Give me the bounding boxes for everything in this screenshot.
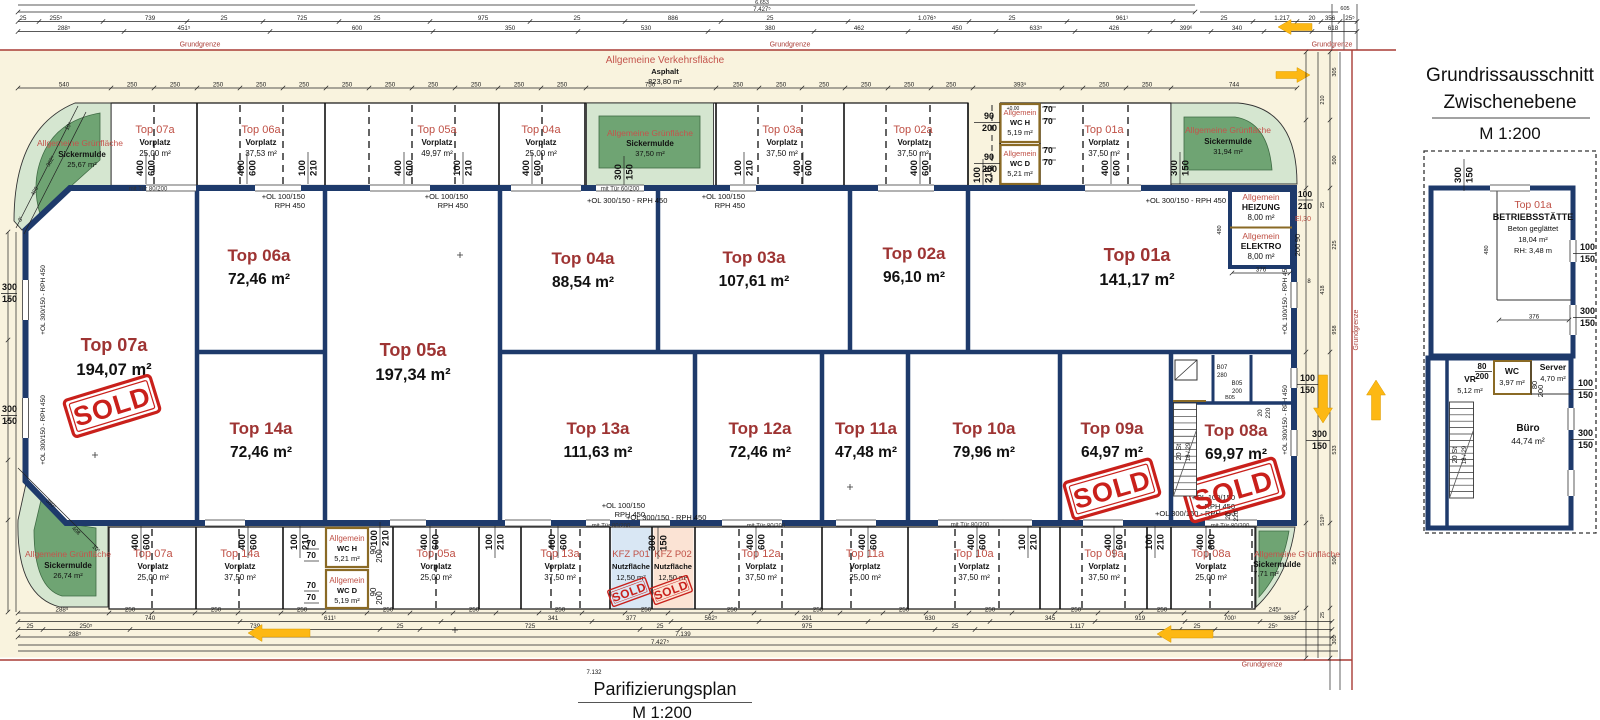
svg-text:533: 533 <box>1332 445 1338 454</box>
svg-text:150: 150 <box>1578 440 1593 450</box>
svg-text:7.427⁵: 7.427⁵ <box>651 639 669 646</box>
svg-text:Allgemein: Allgemein <box>1242 231 1280 241</box>
svg-text:451⁵: 451⁵ <box>178 25 191 32</box>
svg-text:Top 12a: Top 12a <box>729 419 793 438</box>
svg-text:B05: B05 <box>1232 381 1243 387</box>
svg-text:Allgemein: Allgemein <box>329 576 364 585</box>
svg-text:+OL 100/150: +OL 100/150 <box>702 192 745 201</box>
svg-text:288⁵: 288⁵ <box>69 631 82 638</box>
svg-text:376: 376 <box>1529 314 1540 321</box>
svg-text:7.132: 7.132 <box>586 670 602 676</box>
svg-text:376: 376 <box>1256 267 1267 274</box>
svg-text:25: 25 <box>1320 202 1326 208</box>
svg-text:400: 400 <box>792 160 803 176</box>
svg-text:20: 20 <box>1225 512 1232 520</box>
svg-text:255⁵: 255⁵ <box>50 15 63 22</box>
svg-text:600: 600 <box>352 25 363 32</box>
svg-text:250: 250 <box>1157 607 1168 614</box>
svg-text:25: 25 <box>221 15 228 22</box>
svg-text:480: 480 <box>1484 245 1490 254</box>
svg-text:+0,00: +0,00 <box>1007 106 1020 112</box>
svg-text:Zwischenebene: Zwischenebene <box>1443 92 1576 113</box>
svg-text:100: 100 <box>1298 189 1312 199</box>
svg-text:288⁵: 288⁵ <box>56 607 69 614</box>
svg-text:B07: B07 <box>1217 365 1228 371</box>
svg-text:Top 14a: Top 14a <box>230 419 294 438</box>
svg-text:49,97 m²: 49,97 m² <box>421 149 453 158</box>
svg-text:70: 70 <box>1043 104 1053 114</box>
svg-text:70: 70 <box>1043 157 1053 167</box>
svg-text:400: 400 <box>1195 534 1206 550</box>
svg-text:210: 210 <box>745 160 756 176</box>
svg-text:480: 480 <box>1217 225 1223 234</box>
svg-text:345: 345 <box>1045 615 1056 622</box>
svg-text:100: 100 <box>1578 378 1593 388</box>
svg-text:Sickermulde: Sickermulde <box>1253 560 1301 569</box>
svg-text:250: 250 <box>342 82 353 89</box>
svg-text:Top 04a: Top 04a <box>552 249 616 268</box>
svg-text:Grundgrenze: Grundgrenze <box>770 42 811 49</box>
svg-text:Allgemeine Grünfläche: Allgemeine Grünfläche <box>607 128 693 138</box>
svg-text:400: 400 <box>1103 534 1114 550</box>
svg-text:100: 100 <box>484 534 495 550</box>
svg-text:Vorplatz: Vorplatz <box>526 138 557 147</box>
svg-text:Grundgrenze: Grundgrenze <box>180 42 221 49</box>
svg-text:400: 400 <box>1100 160 1111 176</box>
svg-text:250⁵: 250⁵ <box>80 623 93 630</box>
svg-text:80: 80 <box>1478 362 1487 371</box>
svg-text:744: 744 <box>1229 82 1240 89</box>
svg-text:M 1:200: M 1:200 <box>1479 124 1540 143</box>
svg-text:+OL 300/150 - RPH 450: +OL 300/150 - RPH 450 <box>587 196 667 205</box>
svg-text:Grundgrenze: Grundgrenze <box>1353 309 1360 350</box>
svg-text:Top 02a: Top 02a <box>893 124 933 136</box>
svg-text:562⁵: 562⁵ <box>705 615 718 622</box>
svg-text:25⁵: 25⁵ <box>1268 623 1278 630</box>
svg-text:225: 225 <box>1332 240 1338 249</box>
svg-text:8,00 m²: 8,00 m² <box>1247 252 1274 261</box>
svg-text:7.139: 7.139 <box>675 631 691 638</box>
svg-text:72,46 m²: 72,46 m² <box>729 444 791 461</box>
svg-text:600: 600 <box>248 160 259 176</box>
svg-text:20: 20 <box>1309 15 1316 22</box>
svg-text:540: 540 <box>59 82 70 89</box>
svg-text:25: 25 <box>397 623 404 630</box>
svg-text:300: 300 <box>1169 160 1180 176</box>
svg-text:600: 600 <box>978 534 989 550</box>
svg-text:600: 600 <box>147 160 158 176</box>
svg-text:Allgemeine Grünfläche: Allgemeine Grünfläche <box>37 138 123 148</box>
svg-text:200: 200 <box>1293 244 1302 257</box>
svg-text:919: 919 <box>1135 615 1146 622</box>
svg-text:600: 600 <box>921 160 932 176</box>
svg-text:Allgemeine Grünfläche: Allgemeine Grünfläche <box>1254 549 1340 559</box>
svg-text:8,00 m²: 8,00 m² <box>1247 213 1274 222</box>
svg-text:600: 600 <box>869 534 880 550</box>
svg-text:37,50 m²: 37,50 m² <box>635 149 665 158</box>
svg-text:210: 210 <box>496 534 507 550</box>
svg-text:380: 380 <box>765 25 776 32</box>
svg-text:25,00 m²: 25,00 m² <box>849 573 881 582</box>
svg-text:210: 210 <box>464 160 475 176</box>
svg-text:100: 100 <box>452 160 463 176</box>
svg-text:WC H: WC H <box>1010 118 1030 127</box>
svg-text:350: 350 <box>505 25 516 32</box>
svg-text:37,50 m²: 37,50 m² <box>766 149 798 158</box>
svg-text:200: 200 <box>375 591 384 605</box>
svg-text:197,34 m²: 197,34 m² <box>375 366 451 384</box>
svg-text:Allgemein: Allgemein <box>329 534 364 543</box>
svg-text:250: 250 <box>946 82 957 89</box>
svg-text:25,00 m²: 25,00 m² <box>1195 573 1227 582</box>
svg-text:70: 70 <box>307 592 317 602</box>
svg-text:250: 250 <box>1071 607 1082 614</box>
svg-text:WC H: WC H <box>337 544 357 553</box>
svg-text:150: 150 <box>2 294 17 304</box>
svg-text:25: 25 <box>952 623 959 630</box>
svg-text:mit Tür 80/200: mit Tür 80/200 <box>747 524 786 530</box>
svg-text:70: 70 <box>1043 145 1053 155</box>
svg-text:70: 70 <box>307 580 317 590</box>
svg-text:Top 08a: Top 08a <box>1205 421 1269 440</box>
svg-text:+OL 300/150 - RPH 450: +OL 300/150 - RPH 450 <box>1282 385 1289 455</box>
svg-text:150: 150 <box>1181 160 1192 176</box>
svg-text:64,97 m²: 64,97 m² <box>1081 444 1143 461</box>
svg-text:88,54 m²: 88,54 m² <box>552 274 614 291</box>
svg-text:Top 01a: Top 01a <box>1104 245 1172 265</box>
svg-text:25,00 m²: 25,00 m² <box>525 149 557 158</box>
svg-text:250: 250 <box>471 82 482 89</box>
svg-text:25: 25 <box>1320 612 1326 618</box>
svg-text:250: 250 <box>557 82 568 89</box>
svg-text:150: 150 <box>1300 385 1315 395</box>
svg-text:72,46 m²: 72,46 m² <box>228 271 290 288</box>
svg-text:7,71 m²: 7,71 m² <box>1253 569 1279 578</box>
svg-text:Top 07a: Top 07a <box>81 335 149 355</box>
svg-text:210: 210 <box>309 160 320 176</box>
svg-text:250: 250 <box>1099 82 1110 89</box>
svg-text:37,50 m²: 37,50 m² <box>745 573 777 582</box>
svg-text:VR: VR <box>1464 374 1476 384</box>
svg-text:Vorplatz: Vorplatz <box>767 138 798 147</box>
svg-text:+OL 300/150 - RPH 450: +OL 300/150 - RPH 450 <box>626 513 706 522</box>
svg-text:18,04 m²: 18,04 m² <box>1518 235 1548 244</box>
svg-text:250: 250 <box>776 82 787 89</box>
svg-text:Vorplatz: Vorplatz <box>1196 562 1227 571</box>
svg-text:Vorplatz: Vorplatz <box>545 562 576 571</box>
svg-text:WC D: WC D <box>337 586 358 595</box>
svg-text:Vorplatz: Vorplatz <box>421 562 452 571</box>
svg-text:20: 20 <box>1257 409 1264 417</box>
svg-text:250: 250 <box>904 82 915 89</box>
svg-text:500: 500 <box>1332 555 1338 564</box>
svg-text:633⁵: 633⁵ <box>1030 25 1043 32</box>
svg-text:400: 400 <box>419 534 430 550</box>
svg-text:700¹: 700¹ <box>1224 615 1236 622</box>
svg-text:141,17 m²: 141,17 m² <box>1099 271 1175 289</box>
svg-text:BETRIEBSSTÄTTE: BETRIEBSSTÄTTE <box>1493 212 1574 222</box>
svg-text:200: 200 <box>1536 385 1545 398</box>
svg-text:WC D: WC D <box>1010 159 1031 168</box>
svg-text:70: 70 <box>1043 116 1053 126</box>
svg-text:426: 426 <box>1109 25 1120 32</box>
svg-text:4,70 m²: 4,70 m² <box>1540 374 1566 383</box>
svg-text:210: 210 <box>984 167 995 183</box>
svg-text:250: 250 <box>899 607 910 614</box>
svg-text:Vorplatz: Vorplatz <box>850 562 881 571</box>
svg-text:280: 280 <box>1217 373 1228 379</box>
svg-text:1.217: 1.217 <box>1274 15 1290 22</box>
svg-text:725: 725 <box>525 623 536 630</box>
svg-text:250: 250 <box>813 607 824 614</box>
svg-text:25: 25 <box>767 15 774 22</box>
svg-text:250: 250 <box>213 82 224 89</box>
svg-text:5,12 m²: 5,12 m² <box>1457 386 1483 395</box>
svg-text:530: 530 <box>641 25 652 32</box>
svg-text:519⁵: 519⁵ <box>1319 514 1326 525</box>
svg-text:975: 975 <box>802 623 813 630</box>
svg-text:El,30: El,30 <box>1295 216 1311 223</box>
svg-text:750: 750 <box>645 82 656 89</box>
svg-text:37,50 m²: 37,50 m² <box>1088 149 1120 158</box>
svg-text:+OL 300/150 - RPH 450: +OL 300/150 - RPH 450 <box>40 265 47 335</box>
svg-text:25,67 m²: 25,67 m² <box>67 160 97 169</box>
svg-text:Sickermulde: Sickermulde <box>626 139 674 148</box>
svg-text:Vorplatz: Vorplatz <box>140 138 171 147</box>
svg-text:Allgemeine Grünfläche: Allgemeine Grünfläche <box>1185 125 1271 135</box>
svg-text:250: 250 <box>819 82 830 89</box>
svg-text:200: 200 <box>1475 372 1489 381</box>
svg-text:Top 05a: Top 05a <box>380 340 448 360</box>
svg-text:B05: B05 <box>1225 395 1235 401</box>
svg-text:150: 150 <box>1580 318 1595 328</box>
svg-text:100: 100 <box>297 160 308 176</box>
svg-text:300: 300 <box>1312 429 1327 439</box>
svg-text:M 1:200: M 1:200 <box>632 704 692 720</box>
svg-text:975: 975 <box>478 15 489 22</box>
svg-text:300: 300 <box>647 535 658 551</box>
svg-text:400: 400 <box>236 160 247 176</box>
svg-text:300: 300 <box>2 282 17 292</box>
svg-text:600: 600 <box>142 534 153 550</box>
svg-text:96,10 m²: 96,10 m² <box>883 269 945 286</box>
svg-text:400: 400 <box>745 534 756 550</box>
svg-text:400: 400 <box>237 534 248 550</box>
svg-text:25: 25 <box>20 15 27 22</box>
svg-text:Top 06a: Top 06a <box>228 246 292 265</box>
svg-text:70: 70 <box>307 550 317 560</box>
svg-text:600: 600 <box>804 160 815 176</box>
svg-text:250: 250 <box>1142 82 1153 89</box>
svg-text:100: 100 <box>1144 534 1155 550</box>
svg-text:5,21 m²: 5,21 m² <box>334 554 360 563</box>
svg-text:961¹: 961¹ <box>1116 15 1128 22</box>
svg-text:79,96 m²: 79,96 m² <box>953 444 1015 461</box>
svg-text:600: 600 <box>1112 160 1123 176</box>
svg-text:250: 250 <box>211 607 222 614</box>
svg-text:400: 400 <box>857 534 868 550</box>
svg-text:250: 250 <box>985 607 996 614</box>
svg-text:Vorplatz: Vorplatz <box>1089 562 1120 571</box>
svg-text:1.117: 1.117 <box>1069 623 1085 630</box>
svg-text:400: 400 <box>393 160 404 176</box>
svg-text:200: 200 <box>982 123 997 133</box>
svg-text:210: 210 <box>1320 95 1326 104</box>
svg-text:100: 100 <box>1300 373 1315 383</box>
svg-text:400: 400 <box>909 160 920 176</box>
svg-text:250: 250 <box>127 82 138 89</box>
svg-text:611¹: 611¹ <box>324 615 336 622</box>
svg-text:Nutzfläche: Nutzfläche <box>654 562 692 571</box>
svg-text:250: 250 <box>170 82 181 89</box>
svg-text:18 / 29: 18 / 29 <box>1186 442 1192 461</box>
svg-text:Allgemein: Allgemein <box>1004 149 1037 158</box>
svg-text:250: 250 <box>383 607 394 614</box>
svg-text:107,61 m²: 107,61 m² <box>719 273 790 290</box>
svg-text:Allgemeine Verkehrsfläche: Allgemeine Verkehrsfläche <box>606 55 725 66</box>
svg-text:25: 25 <box>374 15 381 22</box>
svg-text:150: 150 <box>1312 441 1327 451</box>
svg-text:600: 600 <box>1115 534 1126 550</box>
svg-text:25⁵: 25⁵ <box>1345 15 1355 22</box>
svg-text:Top 11a: Top 11a <box>835 419 898 438</box>
svg-text:+OL 300/150 - RPH 450: +OL 300/150 - RPH 450 <box>40 395 47 465</box>
svg-text:6.653: 6.653 <box>755 0 769 6</box>
svg-text:Grundgrenze: Grundgrenze <box>1312 42 1353 49</box>
svg-text:111,63 m²: 111,63 m² <box>564 444 633 461</box>
svg-text:Top 13a: Top 13a <box>567 419 631 438</box>
svg-text:mit Tür 80/200: mit Tür 80/200 <box>1211 524 1250 530</box>
svg-text:150: 150 <box>1578 390 1593 400</box>
svg-text:886: 886 <box>668 15 679 22</box>
svg-text:Sickermulde: Sickermulde <box>44 561 92 570</box>
svg-text:mit Tür 80/200: mit Tür 80/200 <box>129 186 168 192</box>
svg-text:Sickermulde: Sickermulde <box>58 150 106 159</box>
svg-text:250: 250 <box>385 82 396 89</box>
svg-text:210: 210 <box>1029 534 1040 550</box>
svg-text:44,74 m²: 44,74 m² <box>1511 436 1545 446</box>
svg-text:ELEKTRO: ELEKTRO <box>1241 241 1282 251</box>
svg-text:HEIZUNG: HEIZUNG <box>1242 202 1281 212</box>
svg-text:Top 03a: Top 03a <box>762 124 802 136</box>
svg-text:25,00 m²: 25,00 m² <box>420 573 452 582</box>
svg-text:Top 07a: Top 07a <box>135 124 175 136</box>
svg-text:250: 250 <box>641 607 652 614</box>
svg-text:300: 300 <box>1453 167 1464 183</box>
svg-text:Vorplatz: Vorplatz <box>1089 138 1120 147</box>
svg-text:150: 150 <box>1465 167 1476 183</box>
svg-text:400: 400 <box>130 534 141 550</box>
svg-text:400: 400 <box>966 534 977 550</box>
svg-text:500: 500 <box>1332 155 1338 164</box>
svg-text:400: 400 <box>521 160 532 176</box>
svg-text:Parifizierungsplan: Parifizierungsplan <box>593 679 736 699</box>
svg-text:300: 300 <box>2 404 17 414</box>
svg-text:mit Tür 60/200: mit Tür 60/200 <box>601 186 640 192</box>
svg-text:+OL 300/150 - RPH 450: +OL 300/150 - RPH 450 <box>1146 196 1226 205</box>
svg-text:250: 250 <box>727 607 738 614</box>
svg-text:300: 300 <box>1578 428 1593 438</box>
svg-text:KFZ P01: KFZ P01 <box>612 549 650 560</box>
svg-text:393⁵: 393⁵ <box>1014 82 1027 89</box>
svg-text:400: 400 <box>135 160 146 176</box>
svg-text:90: 90 <box>1293 234 1302 242</box>
svg-text:630: 630 <box>925 615 936 622</box>
svg-text:250: 250 <box>555 607 566 614</box>
svg-text:305: 305 <box>1332 635 1338 644</box>
svg-text:150: 150 <box>625 164 636 180</box>
svg-text:+OL 100/150: +OL 100/150 <box>425 192 468 201</box>
svg-text:600: 600 <box>559 534 570 550</box>
svg-text:250: 250 <box>297 607 308 614</box>
svg-text:Allgemein: Allgemein <box>1242 192 1280 202</box>
svg-text:20 St: 20 St <box>1452 447 1459 463</box>
svg-text:Top 01a: Top 01a <box>1514 199 1552 211</box>
svg-text:mit Tür 80/200: mit Tür 80/200 <box>951 523 990 529</box>
svg-text:RPH 450: RPH 450 <box>438 201 468 210</box>
svg-text:200: 200 <box>375 549 384 563</box>
svg-text:Top 02a: Top 02a <box>883 244 947 263</box>
svg-text:37,50 m²: 37,50 m² <box>1088 573 1120 582</box>
svg-text:Vorplatz: Vorplatz <box>246 138 277 147</box>
svg-text:210: 210 <box>1298 201 1312 211</box>
svg-text:Nutzfläche: Nutzfläche <box>612 562 650 571</box>
svg-text:5,19 m²: 5,19 m² <box>1007 128 1033 137</box>
svg-text:18 / 29: 18 / 29 <box>1462 445 1468 464</box>
svg-text:100: 100 <box>972 167 983 183</box>
svg-text:210: 210 <box>381 530 392 546</box>
svg-text:Server: Server <box>1540 362 1567 372</box>
svg-text:70: 70 <box>307 538 317 548</box>
svg-text:37,53 m²: 37,53 m² <box>245 149 277 158</box>
svg-text:Top 03a: Top 03a <box>723 248 787 267</box>
svg-text:Asphalt: Asphalt <box>651 67 679 76</box>
svg-text:150: 150 <box>1580 254 1595 264</box>
svg-text:618: 618 <box>1328 25 1339 32</box>
svg-text:Top 09a: Top 09a <box>1081 419 1145 438</box>
svg-text:WC: WC <box>1505 366 1519 376</box>
svg-text:725: 725 <box>297 15 308 22</box>
svg-text:220: 220 <box>1233 510 1240 521</box>
svg-text:25: 25 <box>1221 15 1228 22</box>
svg-text:341: 341 <box>548 615 559 622</box>
svg-text:288⁵: 288⁵ <box>58 25 71 32</box>
svg-text:300: 300 <box>1580 306 1595 316</box>
svg-text:300: 300 <box>613 164 624 180</box>
svg-text:Vorplatz: Vorplatz <box>959 562 990 571</box>
svg-text:37,50 m²: 37,50 m² <box>224 573 256 582</box>
svg-text:150: 150 <box>2 416 17 426</box>
svg-text:305: 305 <box>1332 67 1338 76</box>
svg-text:Beton geglättet: Beton geglättet <box>1508 224 1559 233</box>
svg-text:450: 450 <box>952 25 963 32</box>
svg-text:399⁶: 399⁶ <box>1180 25 1193 32</box>
svg-text:100: 100 <box>369 530 380 546</box>
svg-text:26,74 m²: 26,74 m² <box>53 571 83 580</box>
svg-text:739: 739 <box>145 15 156 22</box>
svg-text:Vorplatz: Vorplatz <box>898 138 929 147</box>
svg-text:605: 605 <box>1340 6 1349 12</box>
svg-text:20 St: 20 St <box>1176 444 1183 460</box>
svg-text:+OL 100/150: +OL 100/150 <box>602 501 645 510</box>
svg-text:250: 250 <box>514 82 525 89</box>
svg-text:3,97 m²: 3,97 m² <box>1499 378 1525 387</box>
svg-text:250: 250 <box>861 82 872 89</box>
svg-text:Grundgrenze: Grundgrenze <box>1242 662 1283 669</box>
svg-text:340: 340 <box>1232 25 1243 32</box>
svg-text:37,50 m²: 37,50 m² <box>958 573 990 582</box>
svg-text:740: 740 <box>145 615 156 622</box>
